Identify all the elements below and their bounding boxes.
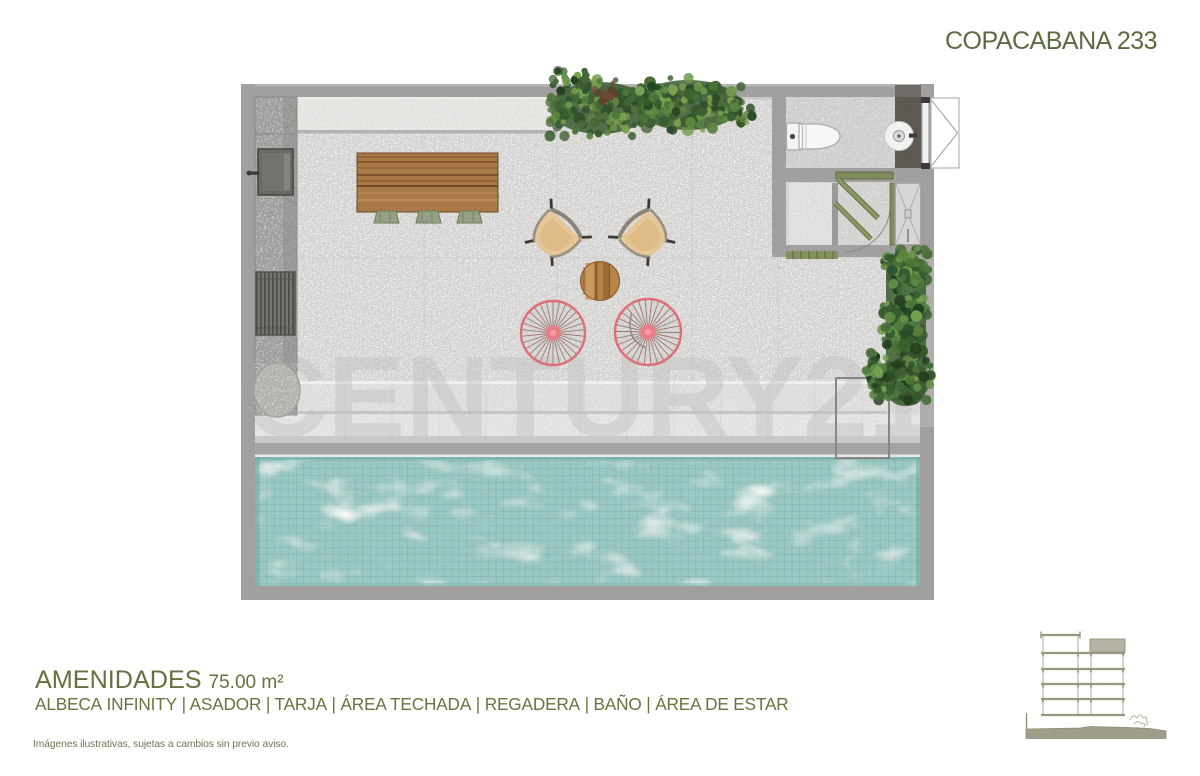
svg-text:CENTURY21: CENTURY21 xyxy=(243,334,933,461)
